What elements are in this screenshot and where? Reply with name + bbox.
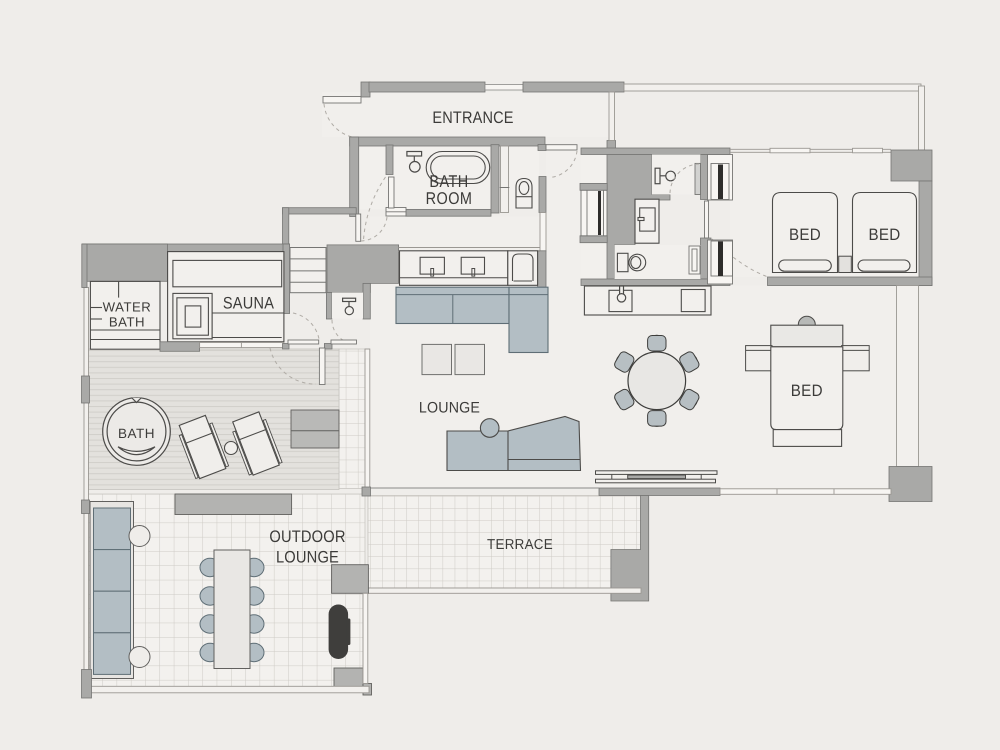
svg-text:TERRACE: TERRACE <box>487 537 553 553</box>
svg-text:BED: BED <box>789 226 821 244</box>
svg-text:WATER: WATER <box>103 300 152 315</box>
svg-text:BATH: BATH <box>118 426 155 441</box>
svg-text:LOUNGE: LOUNGE <box>419 400 480 417</box>
svg-text:ENTRANCE: ENTRANCE <box>432 108 513 127</box>
svg-text:OUTDOOR: OUTDOOR <box>269 527 345 546</box>
svg-text:BED: BED <box>868 226 900 244</box>
svg-text:BED: BED <box>791 382 823 400</box>
svg-text:BATH: BATH <box>109 315 145 330</box>
svg-text:ROOM: ROOM <box>426 189 473 208</box>
svg-text:SAUNA: SAUNA <box>223 294 275 313</box>
svg-text:LOUNGE: LOUNGE <box>276 548 339 567</box>
